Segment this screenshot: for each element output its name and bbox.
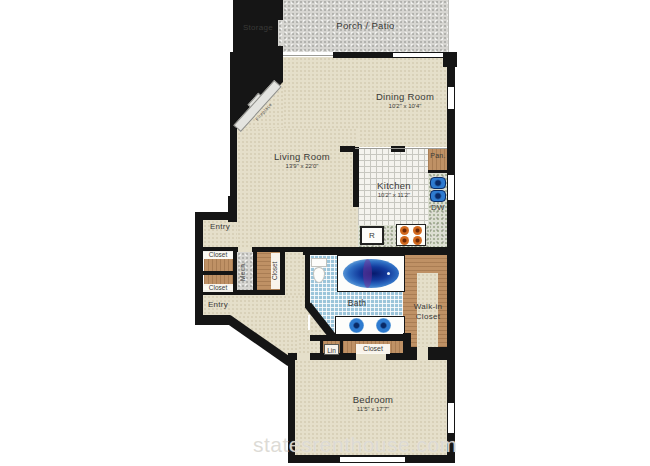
dishwasher-label: DW [428, 203, 448, 212]
bedroom-label-block: Bedroom 11'5" x 17'7" [330, 394, 416, 412]
kitchen-opening-line [355, 148, 447, 149]
vanity [335, 316, 405, 335]
kitchen-dims: 10'2" x 11'2" [358, 192, 430, 198]
entry-top-wall [203, 212, 228, 220]
mech-closet-wall [253, 252, 257, 290]
porch-window [393, 52, 443, 58]
entry-corner-wall [228, 196, 237, 222]
bedroom-bottom-window [340, 456, 405, 463]
closet-left-divider [203, 271, 234, 275]
entry-lower-label: Entry [200, 300, 236, 309]
watermark: statesrenthouse.com [253, 433, 457, 457]
bedroom-closet-opening [356, 353, 386, 360]
closet-hall-label: Closet [271, 253, 280, 289]
kitchen-sink-top [430, 177, 446, 189]
storage-label: Storage [238, 23, 278, 32]
walkin-label: Walk-in Closet [406, 302, 450, 322]
pantry-label: Pan. [428, 152, 448, 159]
vanity-sink-left [349, 318, 364, 333]
living-label: Living Room [252, 151, 352, 162]
kitchen-label: Kitchen [358, 180, 430, 191]
porch-label: Porch / Patio [283, 20, 448, 31]
linen-label: Lin [324, 344, 339, 355]
closet-left-top-shelf [204, 259, 233, 271]
kitchen-sink-bottom [430, 190, 446, 202]
dining-label: Dining Room [355, 91, 455, 102]
kitchen-label-block: Kitchen 10'2" x 11'2" [358, 180, 430, 198]
closet-mech-wall [233, 252, 237, 290]
bath-label: Bath [337, 298, 377, 308]
floorplan-canvas: Storage Porch / Patio Fireplace Dining R… [0, 0, 650, 466]
entry-upper-label: Entry [203, 222, 237, 231]
right-wall-mid [447, 109, 455, 175]
bedroom-right-window [447, 403, 455, 433]
pantry-bottom-wall [428, 170, 448, 173]
dining-dims: 10'2" x 10'4" [355, 103, 455, 109]
kitchen-top-wall-b [391, 146, 405, 152]
living-label-block: Living Room 13'9" x 22'0" [252, 151, 352, 169]
closet-left-top-label: Closet [203, 251, 233, 259]
porch-door-opening-line [283, 55, 333, 56]
entry-lower-left-wall [195, 315, 230, 325]
mech-label: Mech. [239, 253, 251, 289]
stove-burner-2 [413, 226, 422, 235]
bathtub [343, 259, 399, 288]
closet-bedroom-label: Closet [356, 344, 390, 354]
stove-burner-3 [400, 236, 409, 245]
hall-nook-floor [285, 252, 305, 295]
bedroom-walkin-opening [417, 353, 428, 360]
bedroom-dims: 11'5" x 17'7" [330, 406, 416, 412]
stove-burner-1 [400, 226, 409, 235]
closet-hall-right-wall [280, 252, 285, 292]
mech-door-opening [238, 247, 252, 252]
dining-label-block: Dining Room 10'2" x 10'4" [355, 91, 455, 109]
bedroom-entry-opening [297, 353, 310, 360]
living-dims: 13'9" x 22'0" [252, 163, 352, 169]
kitchen-window [447, 175, 455, 200]
stove-burner-4 [413, 236, 422, 245]
bath-left-wall [305, 255, 310, 307]
closet-left-bottom-label: Closet [203, 284, 233, 292]
bathtub-stripe [363, 259, 372, 288]
bath-top-wall [303, 247, 455, 255]
toilet-tank [311, 258, 327, 267]
refrigerator-label: R [360, 231, 384, 240]
bedroom-label: Bedroom [330, 394, 416, 405]
vanity-sink-right [376, 318, 391, 333]
bathtub-drain [387, 272, 390, 275]
right-wall-upper [447, 57, 455, 87]
kitchen-left-wall [353, 147, 359, 207]
porch-bottom-wall [333, 52, 393, 58]
